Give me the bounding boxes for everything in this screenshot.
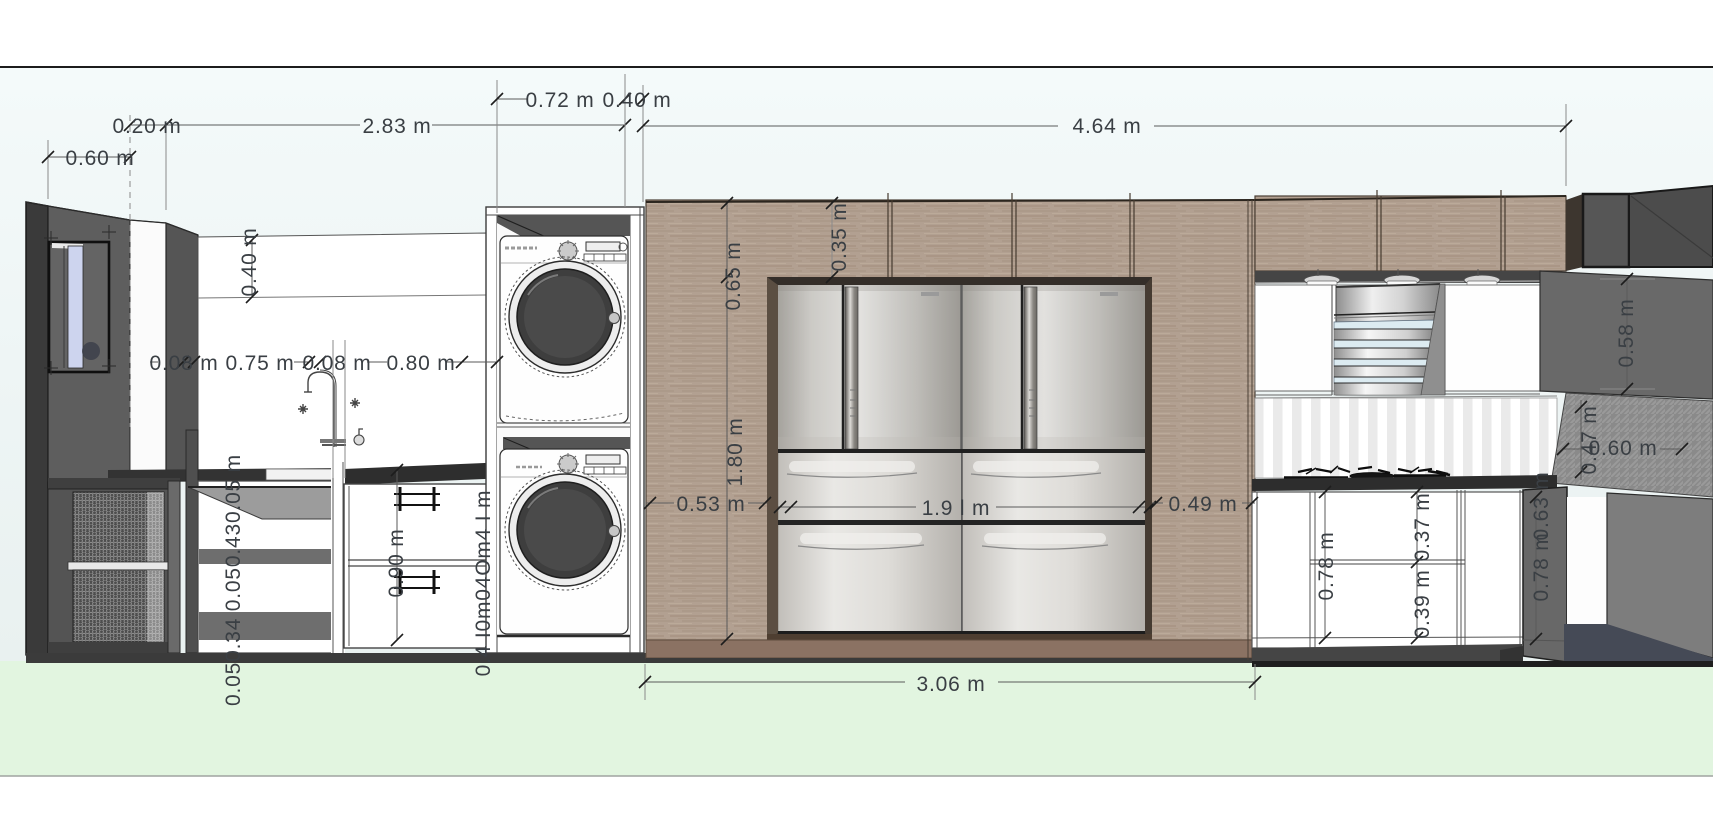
svg-text:0.37 m: 0.37 m — [1411, 493, 1434, 562]
svg-text:4.64 m: 4.64 m — [1073, 115, 1142, 138]
svg-text:0.08 m: 0.08 m — [150, 352, 219, 375]
svg-text:0.63 m: 0.63 m — [1530, 472, 1553, 541]
svg-text:0.050.34 0.050.430.05 m: 0.050.34 0.050.430.05 m — [222, 454, 245, 706]
svg-text:3.06 m: 3.06 m — [917, 673, 986, 696]
svg-text:0.08 m: 0.08 m — [303, 352, 372, 375]
svg-text:0.20 m: 0.20 m — [113, 115, 182, 138]
svg-text:1.9 l m: 1.9 l m — [922, 497, 991, 520]
svg-text:0.78 m: 0.78 m — [1315, 532, 1338, 601]
svg-text:0.80 m: 0.80 m — [387, 352, 456, 375]
svg-text:2.83 m: 2.83 m — [363, 115, 432, 138]
svg-text:0.39 m: 0.39 m — [1411, 570, 1434, 639]
svg-text:0.90 m: 0.90 m — [385, 529, 408, 598]
svg-text:0.35 m: 0.35 m — [828, 203, 851, 272]
svg-text:0.65 m: 0.65 m — [722, 242, 745, 311]
svg-text:0.58 m: 0.58 m — [1615, 299, 1638, 368]
svg-text:0.78 m: 0.78 m — [1530, 533, 1553, 602]
svg-text:0.53 m: 0.53 m — [677, 493, 746, 516]
svg-text:0.60 m: 0.60 m — [1589, 437, 1658, 460]
svg-text:0.60 m: 0.60 m — [66, 147, 135, 170]
svg-text:0.49 m: 0.49 m — [1169, 493, 1238, 516]
svg-text:0.4 I0m04Om4 I m: 0.4 I0m04Om4 I m — [472, 490, 495, 677]
svg-text:0.75 m: 0.75 m — [226, 352, 295, 375]
svg-text:0.40 m: 0.40 m — [603, 89, 672, 112]
svg-text:0.40 m: 0.40 m — [238, 228, 261, 297]
svg-text:1.80 m: 1.80 m — [724, 418, 747, 487]
svg-text:0.72 m: 0.72 m — [526, 89, 595, 112]
